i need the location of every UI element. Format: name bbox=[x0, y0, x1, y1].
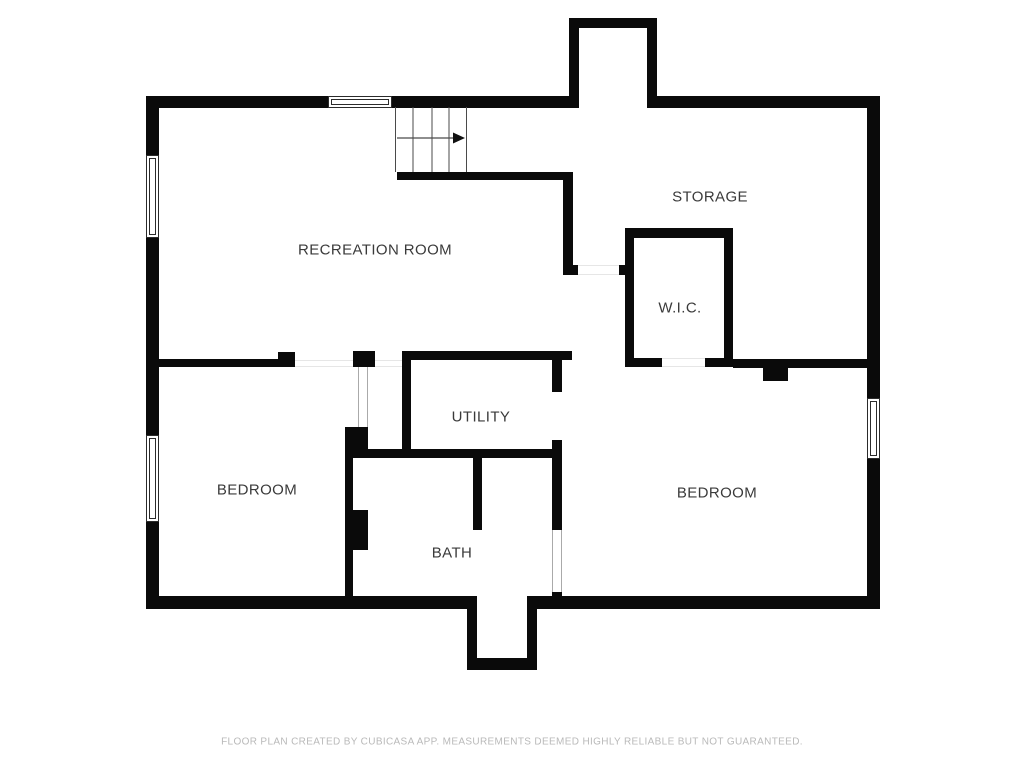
footer-disclaimer: FLOOR PLAN CREATED BY CUBICASA APP. MEAS… bbox=[221, 737, 803, 748]
wall-segment bbox=[353, 510, 368, 550]
wall-segment bbox=[552, 440, 562, 530]
window bbox=[328, 96, 392, 108]
stairs-direction-arrow-icon bbox=[453, 133, 465, 144]
wall-segment bbox=[345, 458, 353, 597]
wall-segment bbox=[705, 358, 733, 367]
wall-segment bbox=[527, 596, 880, 609]
wall-segment bbox=[345, 427, 368, 458]
stairs-graphic bbox=[395, 107, 467, 172]
wall-segment bbox=[647, 18, 657, 108]
room-label-w-i-c: W.I.C. bbox=[658, 300, 701, 317]
window bbox=[146, 435, 159, 522]
room-label-utility: UTILITY bbox=[452, 409, 511, 426]
room-label-recreation-room: RECREATION ROOM bbox=[298, 242, 452, 259]
wall-segment bbox=[625, 228, 733, 238]
wall-segment bbox=[569, 18, 657, 28]
door-opening bbox=[295, 360, 353, 367]
wall-segment bbox=[402, 351, 411, 458]
room-label-bedroom: BEDROOM bbox=[217, 482, 297, 499]
door-opening bbox=[578, 265, 619, 275]
door-opening bbox=[375, 360, 402, 367]
staircase bbox=[395, 107, 467, 172]
wall-segment bbox=[625, 228, 634, 367]
window-frame bbox=[149, 158, 156, 235]
wall-segment bbox=[552, 592, 562, 600]
wall-segment bbox=[724, 228, 733, 367]
wall-segment bbox=[569, 18, 579, 108]
wall-segment bbox=[278, 352, 295, 367]
wall-segment bbox=[733, 359, 867, 368]
wall-segment bbox=[158, 359, 278, 367]
room-label-storage: STORAGE bbox=[672, 189, 748, 206]
wall-segment bbox=[563, 172, 573, 265]
wall-segment bbox=[402, 351, 572, 360]
wall-segment bbox=[563, 265, 578, 275]
wall-segment bbox=[146, 96, 328, 108]
door-opening bbox=[662, 358, 705, 367]
door-opening bbox=[552, 530, 562, 592]
room-label-bedroom: BEDROOM bbox=[677, 485, 757, 502]
door-opening bbox=[358, 367, 368, 427]
wall-segment bbox=[353, 351, 375, 367]
window bbox=[867, 398, 880, 459]
wall-segment bbox=[867, 96, 880, 609]
wall-segment bbox=[527, 596, 537, 670]
wall-segment bbox=[345, 449, 560, 458]
room-label-bath: BATH bbox=[432, 545, 473, 562]
window-frame bbox=[870, 401, 877, 456]
wall-segment bbox=[473, 458, 482, 530]
window-frame bbox=[149, 438, 156, 519]
window-frame bbox=[331, 99, 389, 105]
wall-segment bbox=[552, 360, 562, 392]
wall-segment bbox=[625, 358, 662, 367]
window bbox=[146, 155, 159, 238]
wall-segment bbox=[763, 368, 788, 381]
wall-segment bbox=[146, 596, 477, 609]
wall-segment bbox=[657, 96, 880, 108]
wall-segment bbox=[397, 172, 573, 180]
floor-plan: FLOOR PLAN CREATED BY CUBICASA APP. MEAS… bbox=[0, 0, 1024, 768]
